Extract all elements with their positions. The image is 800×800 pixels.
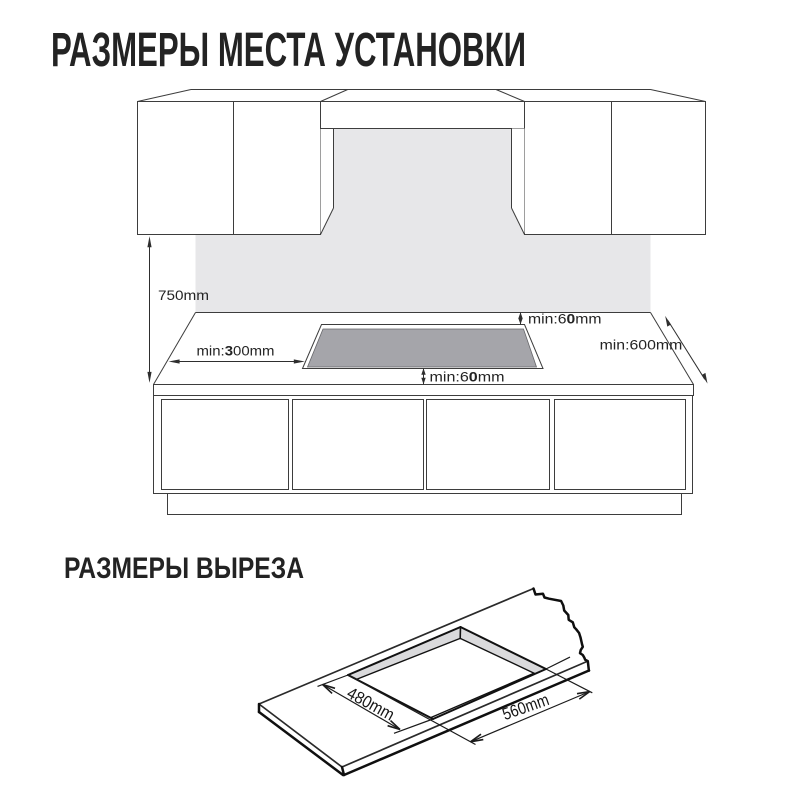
svg-text:750mm: 750mm [158,288,209,303]
svg-text:min:60mm: min:60mm [528,312,602,327]
svg-text:min:300mm: min:300mm [197,344,275,359]
svg-text:min:60mm: min:60mm [430,370,505,385]
svg-text:min:600mm: min:600mm [600,338,683,353]
svg-text:480mm: 480mm [344,683,398,724]
svg-text:РАЗМЕРЫ МЕСТА УСТАНОВКИ: РАЗМЕРЫ МЕСТА УСТАНОВКИ [51,24,526,77]
svg-text:РАЗМЕРЫ ВЫРЕЗА: РАЗМЕРЫ ВЫРЕЗА [64,552,304,585]
